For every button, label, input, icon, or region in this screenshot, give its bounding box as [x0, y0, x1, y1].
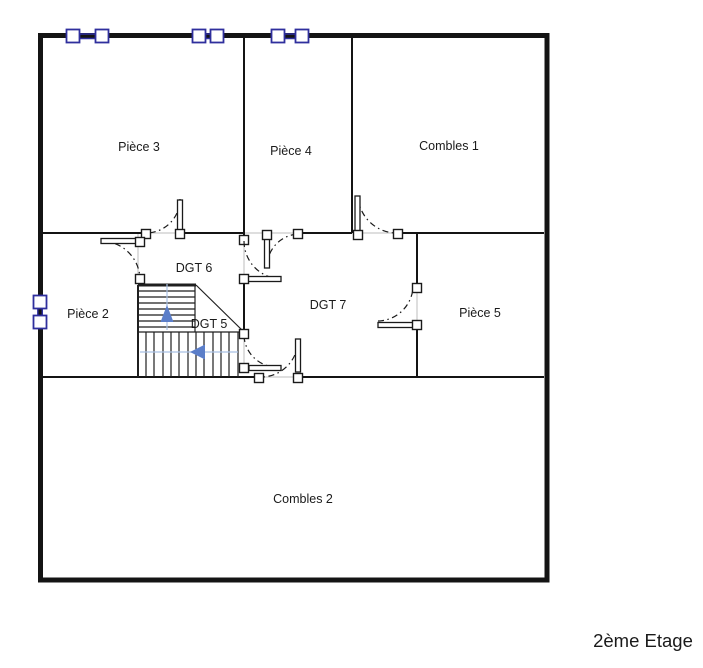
room-label-dgt6: DGT 6: [176, 261, 213, 275]
floor-plan-drawing: Pièce 3 Pièce 4 Combles 1 DGT 6 Pièce 2 …: [0, 0, 703, 668]
room-label-combles1: Combles 1: [419, 139, 479, 153]
door-swing-icon-combles2: [255, 339, 303, 383]
stairs-up-arrow-icon: [161, 305, 174, 322]
room-label-combles2: Combles 2: [273, 492, 333, 506]
door-swing-icon-dgt6: [240, 241, 282, 284]
room-label-piece4: Pièce 4: [270, 144, 312, 158]
inner-walls: [43, 38, 544, 377]
door-swing-icon-stair-exit: [240, 330, 282, 373]
room-label-dgt5: DGT 5: [191, 317, 228, 331]
room-label-piece5: Pièce 5: [459, 306, 501, 320]
staircase: [138, 285, 244, 377]
room-label-piece2: Pièce 2: [67, 307, 109, 321]
stairs-left-arrow-icon: [190, 345, 205, 360]
room-label-piece3: Pièce 3: [118, 140, 160, 154]
floor-title: 2ème Etage: [593, 630, 693, 651]
door-swing-icon-piece4: [240, 230, 303, 269]
room-label-dgt7: DGT 7: [310, 298, 347, 312]
doors: [101, 196, 422, 383]
floor-plan-canvas: Pièce 3 Pièce 4 Combles 1 DGT 6 Pièce 2 …: [0, 0, 703, 668]
door-swing-icon-piece5: [378, 284, 422, 330]
zone-guide-lines: [138, 233, 417, 377]
